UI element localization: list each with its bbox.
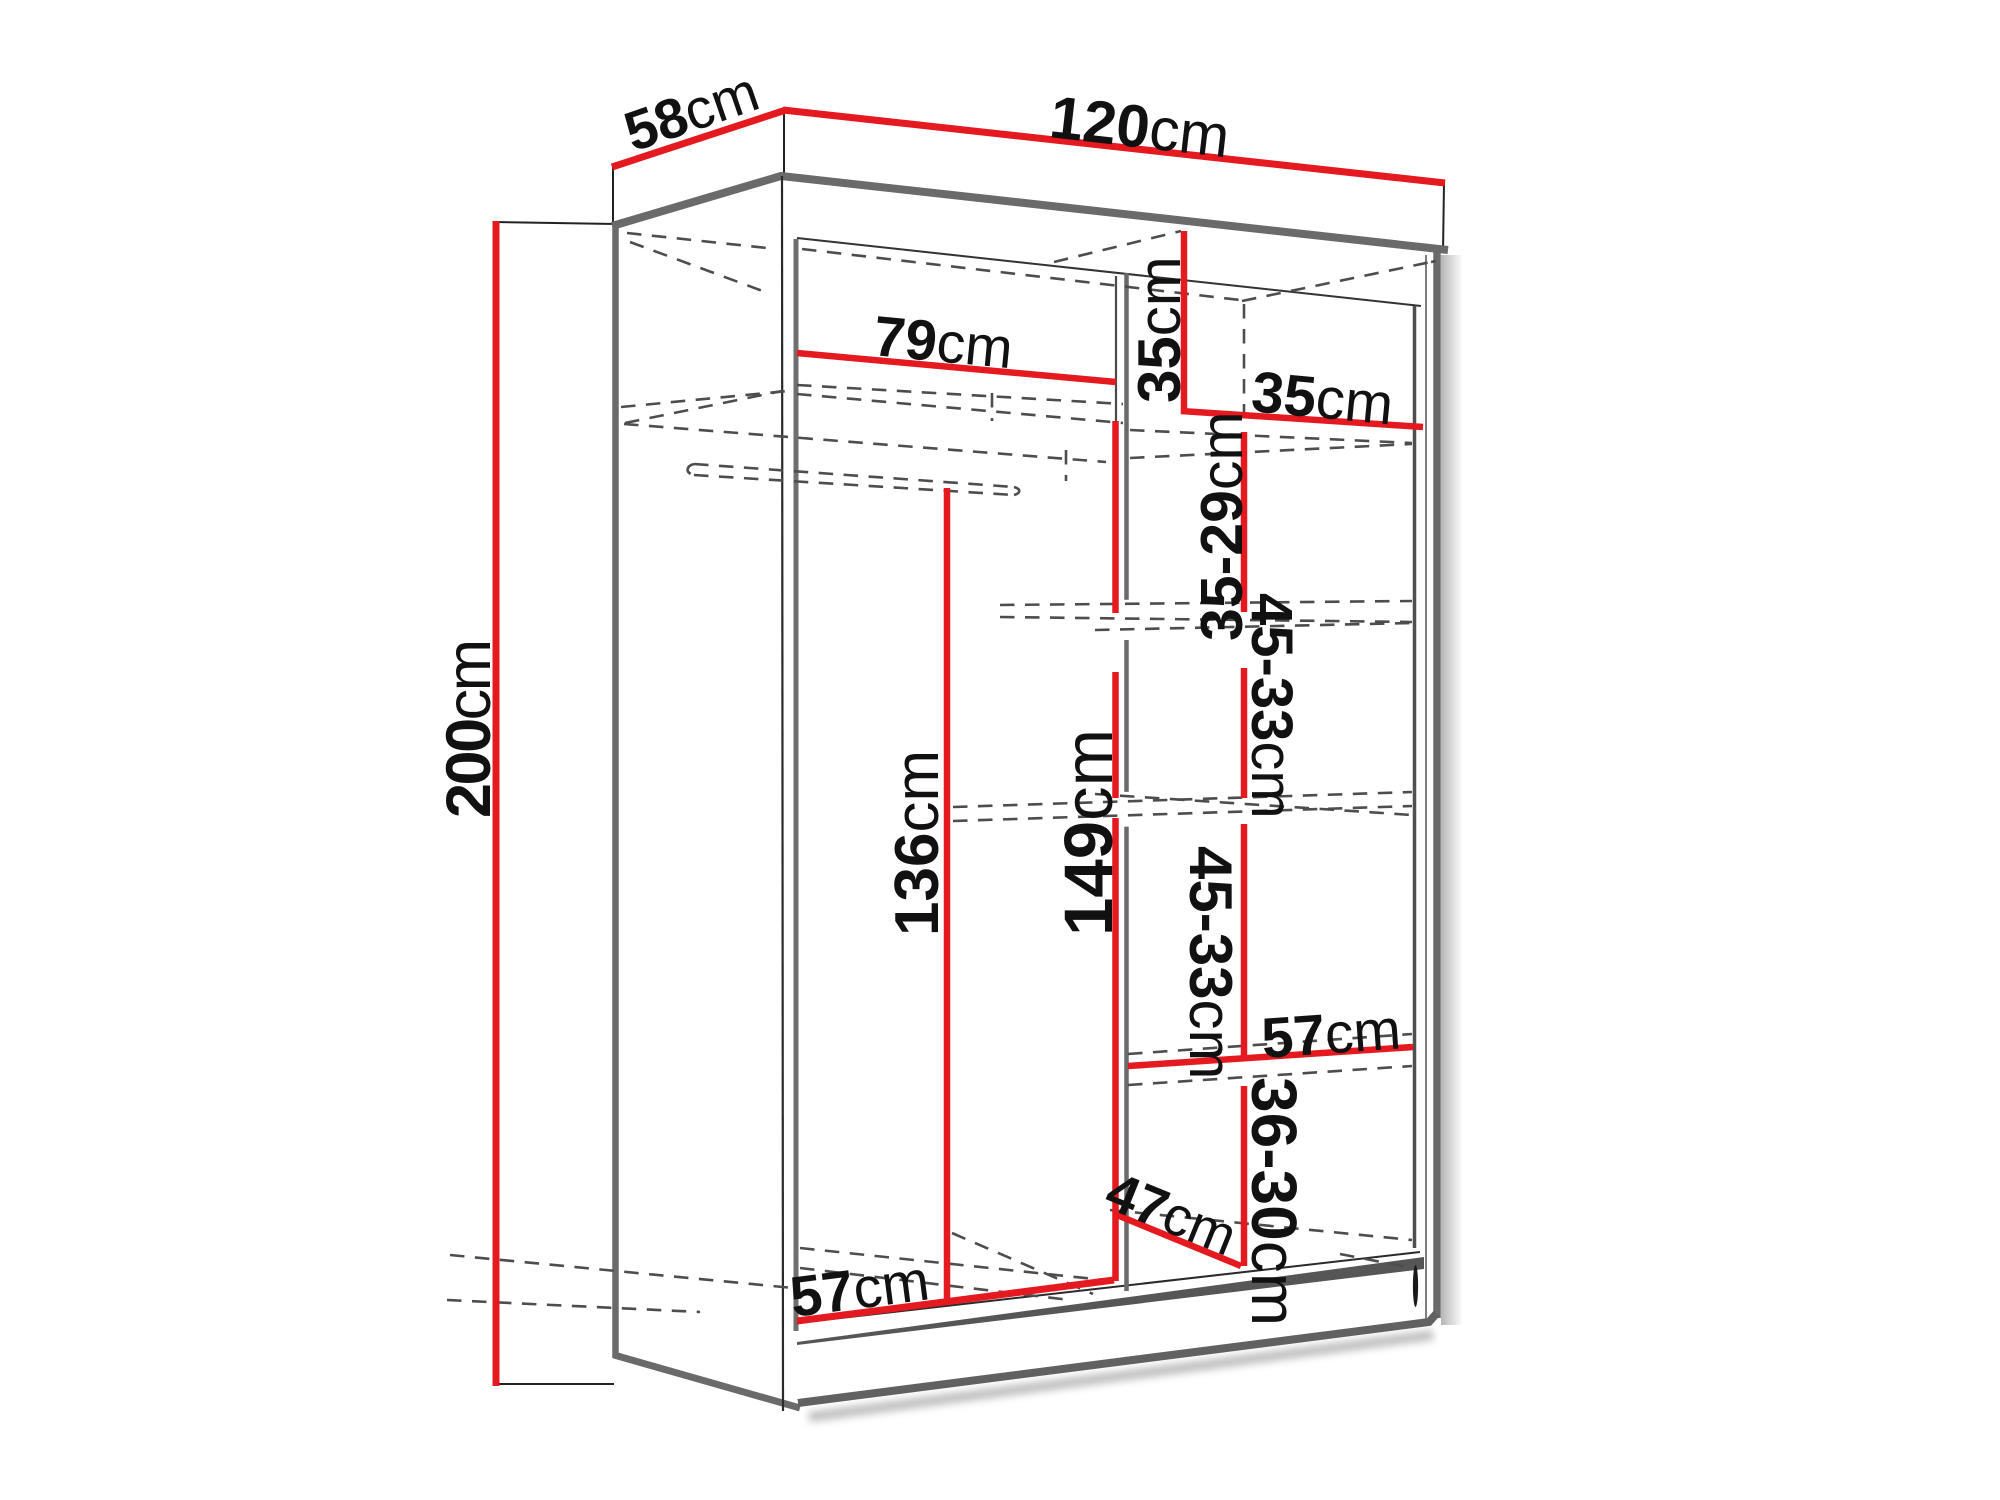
svg-text:200cm: 200cm — [434, 641, 504, 818]
svg-text:45-33cm: 45-33cm — [1177, 846, 1244, 1079]
svg-text:149cm: 149cm — [1050, 729, 1127, 936]
svg-text:36-30cm: 36-30cm — [1238, 1077, 1310, 1326]
svg-text:136cm: 136cm — [883, 750, 952, 936]
svg-text:57cm: 57cm — [1259, 997, 1403, 1071]
svg-text:45-33cm: 45-33cm — [1239, 593, 1304, 819]
svg-text:79cm: 79cm — [871, 304, 1016, 381]
svg-text:35cm: 35cm — [1126, 256, 1193, 403]
svg-text:35cm: 35cm — [1249, 359, 1396, 437]
